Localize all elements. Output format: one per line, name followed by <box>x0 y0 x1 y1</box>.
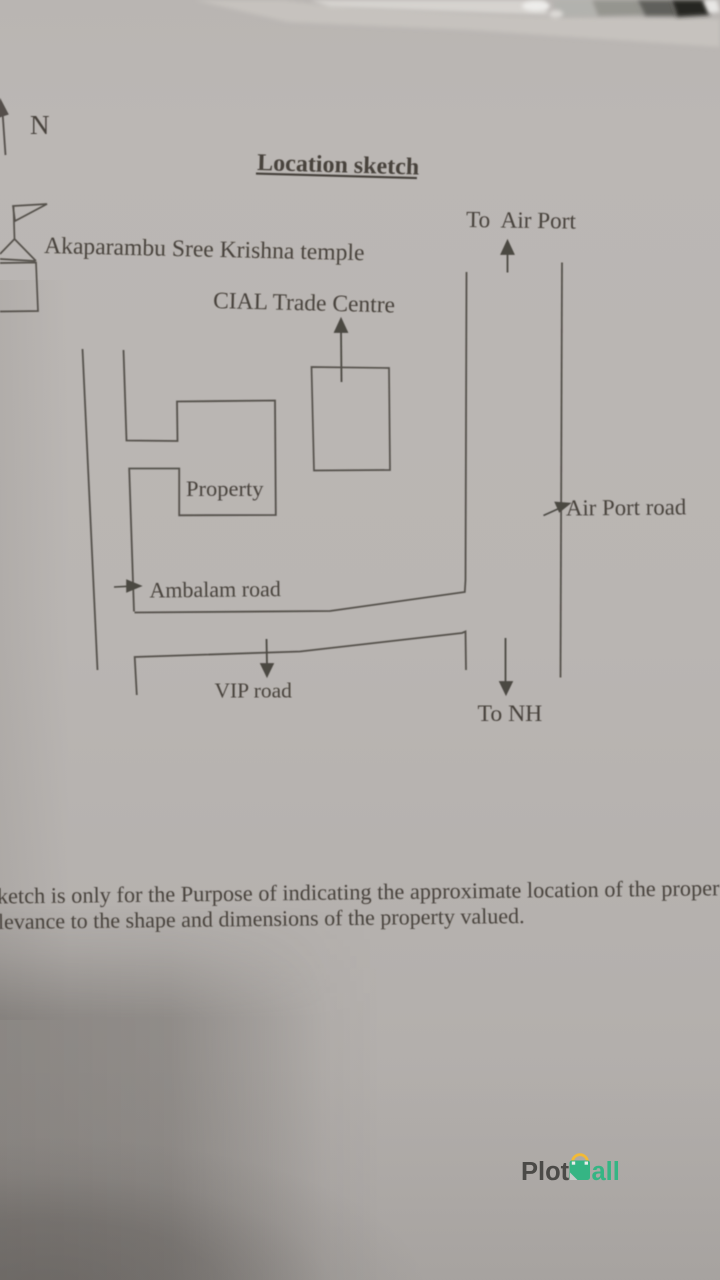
svg-text:CIAL Trade Centre: CIAL Trade Centre <box>213 288 395 318</box>
svg-text:Plot: Plot <box>521 1158 570 1186</box>
svg-text:N: N <box>30 110 50 140</box>
svg-text:Property: Property <box>186 476 264 501</box>
svg-text:all: all <box>592 1158 620 1186</box>
svg-text:Ambalam road: Ambalam road <box>149 576 281 602</box>
svg-text:To NH: To NH <box>478 701 543 727</box>
svg-text:To Air Port: To Air Port <box>466 207 577 235</box>
svg-text:Air Port road: Air Port road <box>566 494 687 520</box>
svg-text:VIP road: VIP road <box>215 679 293 703</box>
